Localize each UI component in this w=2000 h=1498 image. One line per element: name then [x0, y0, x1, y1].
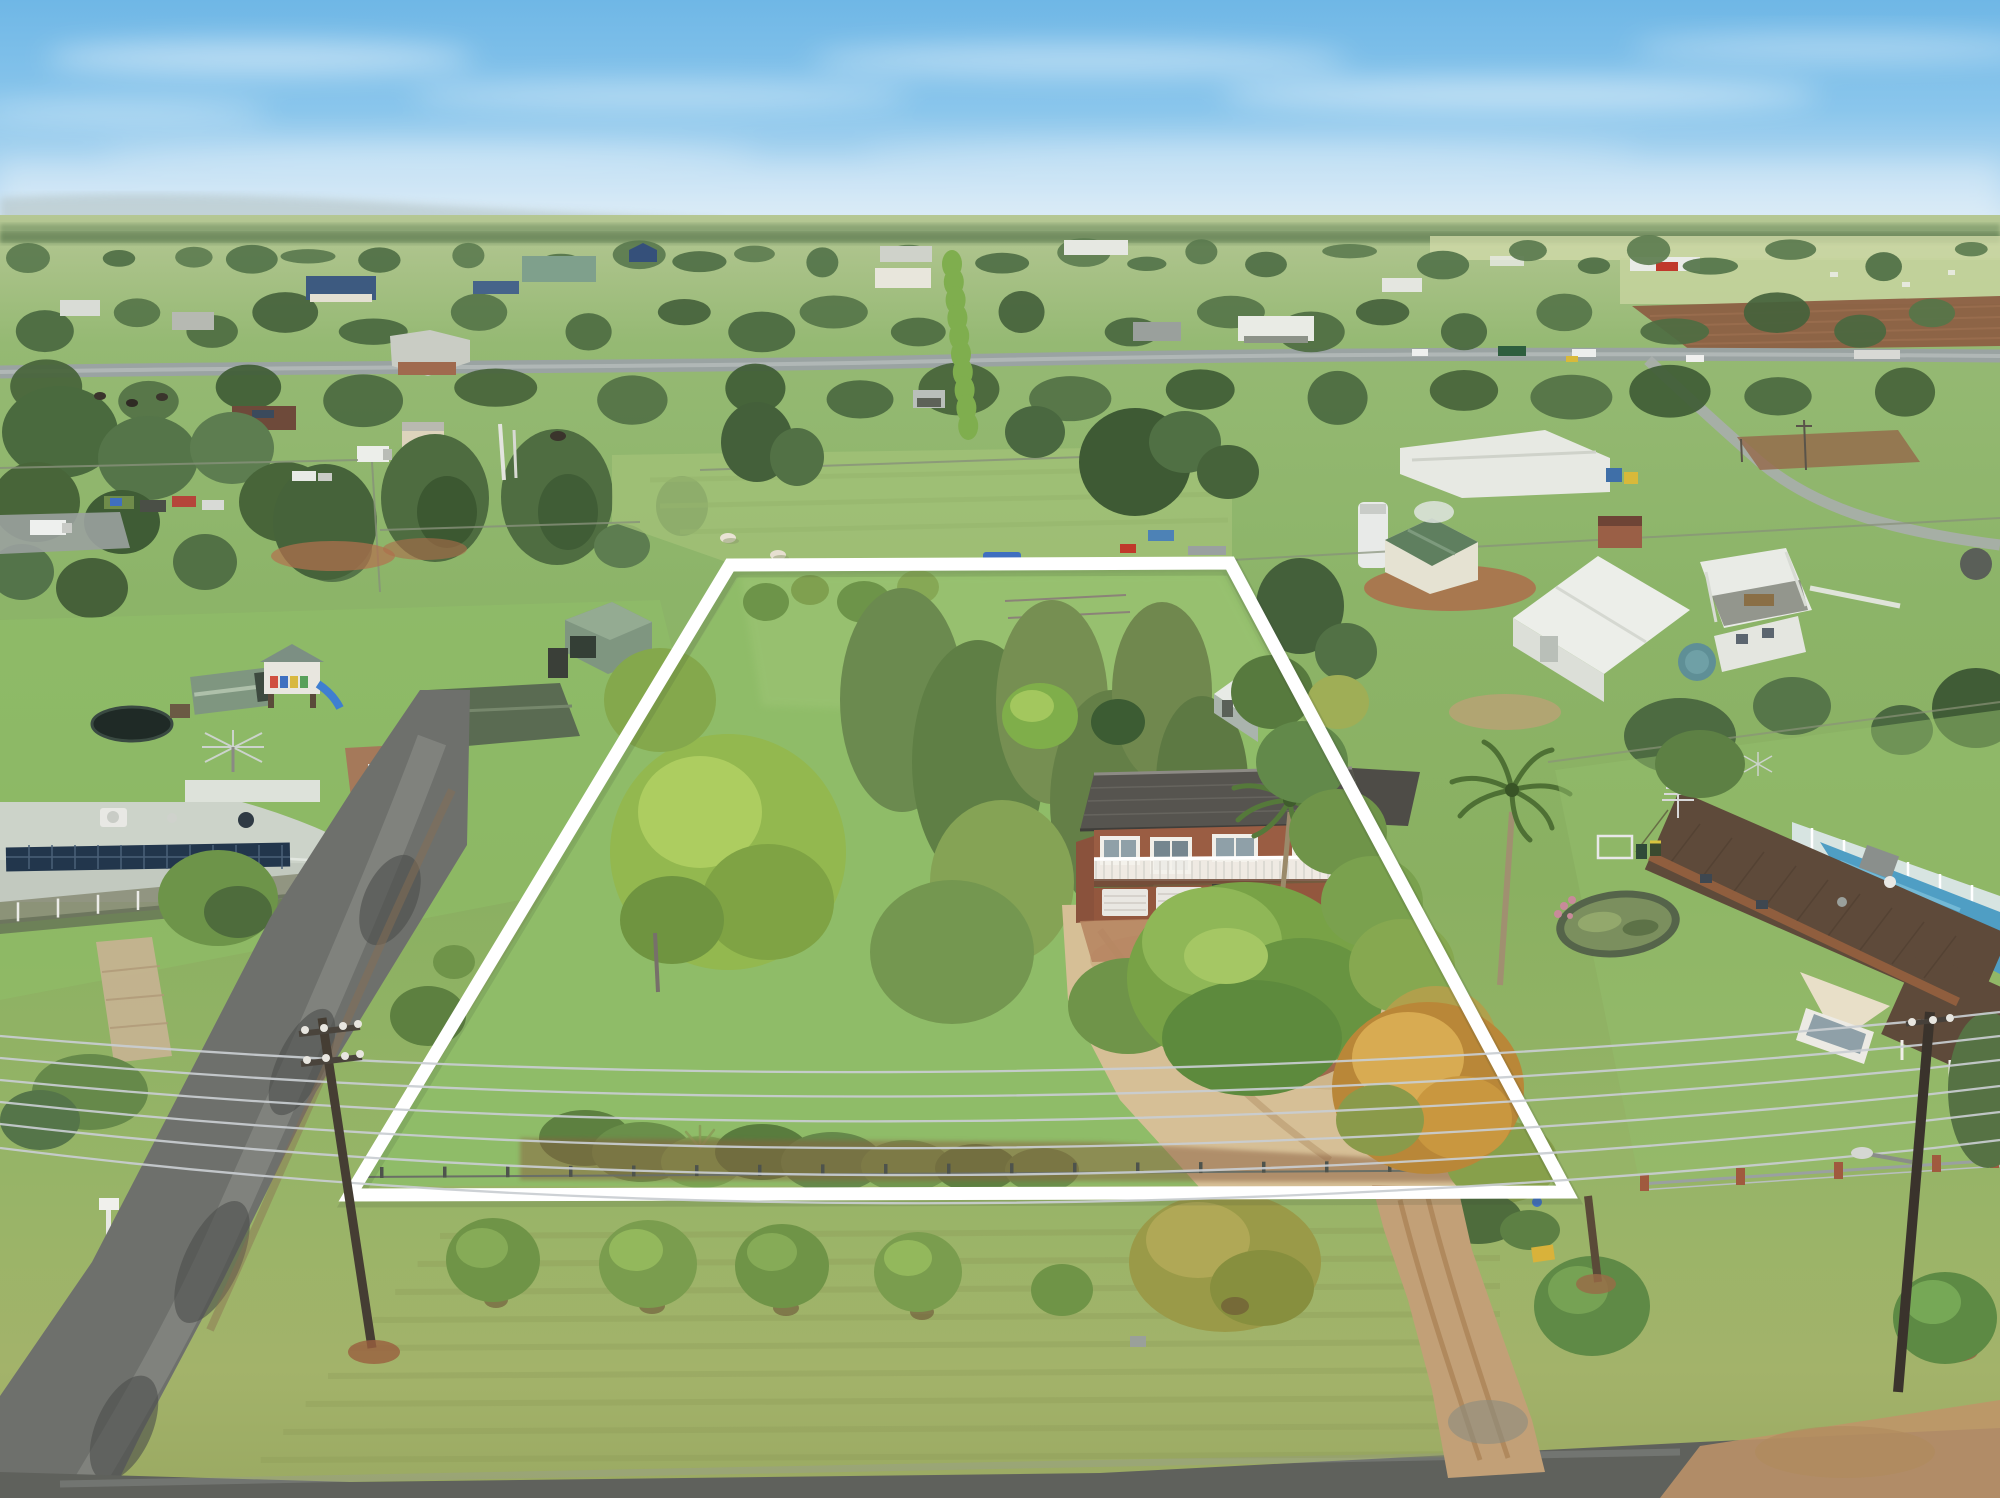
garbage-truck [357, 446, 392, 462]
dark-shrub [1091, 699, 1145, 745]
trampoline [92, 707, 172, 741]
olive-gold-tree [1129, 1192, 1321, 1332]
street-lamp [1851, 1147, 1873, 1159]
bg-house-white-long [1238, 316, 1314, 343]
aerial-photo [0, 0, 2000, 1498]
satellite-dish [238, 812, 254, 828]
yellow-marker [1531, 1245, 1555, 1263]
flue [167, 813, 177, 823]
dog-kennel [170, 704, 190, 718]
